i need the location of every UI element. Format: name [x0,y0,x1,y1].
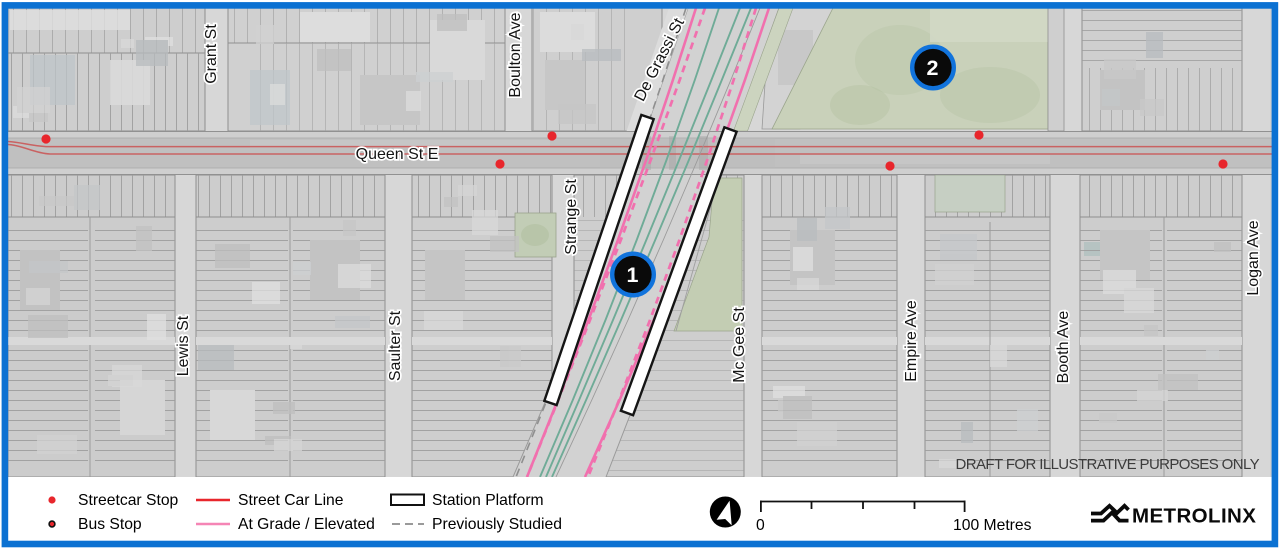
svg-text:100 Metres: 100 Metres [953,517,1032,534]
svg-text:Boulton Ave: Boulton Ave [507,12,524,97]
svg-text:Station Platform: Station Platform [432,492,544,509]
svg-text:Booth Ave: Booth Ave [1055,311,1072,384]
svg-text:1: 1 [627,263,639,287]
svg-text:Street Car Line: Street Car Line [238,492,344,509]
svg-text:Mc Gee St: Mc Gee St [731,307,748,383]
svg-text:Streetcar Stop: Streetcar Stop [78,492,179,509]
svg-text:Bus Stop: Bus Stop [78,516,142,533]
svg-text:Saulter St: Saulter St [387,310,404,381]
svg-text:METROLINX: METROLINX [1132,505,1256,528]
svg-text:Grant St: Grant St [203,24,220,84]
svg-text:Queen St E: Queen St E [356,146,439,163]
svg-text:Strange St: Strange St [563,179,580,255]
svg-text:Lewis St: Lewis St [175,315,192,376]
svg-text:0: 0 [756,517,765,534]
svg-text:Logan Ave: Logan Ave [1245,220,1262,295]
svg-text:DRAFT FOR ILLUSTRATIVE PURPOSE: DRAFT FOR ILLUSTRATIVE PURPOSES ONLY [956,456,1260,473]
svg-text:At Grade / Elevated: At Grade / Elevated [238,516,375,533]
svg-text:Previously Studied: Previously Studied [432,516,562,533]
svg-text:2: 2 [927,56,939,80]
svg-text:Empire Ave: Empire Ave [903,300,920,382]
